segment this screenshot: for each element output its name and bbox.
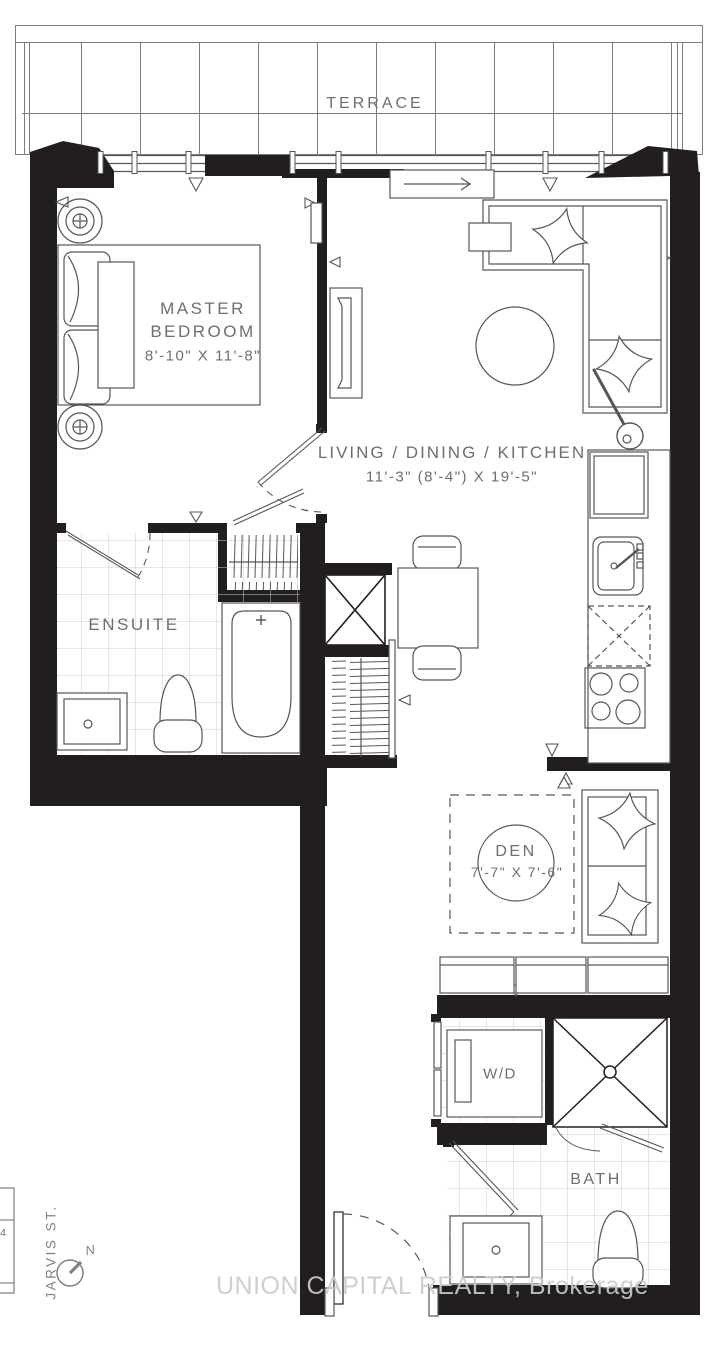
- bath-label: BATH: [570, 1171, 621, 1189]
- marker-bedroom-left: [56, 197, 68, 207]
- wall-panel: [311, 203, 322, 243]
- wall-shaft-bottom: [300, 645, 392, 657]
- ensuite-closet: [229, 535, 298, 590]
- sofa-side-table: [469, 223, 511, 251]
- shower: [553, 1018, 667, 1127]
- wall-bedroom-bottom-b: [148, 523, 218, 533]
- den-label: DEN: [495, 843, 536, 861]
- living-dining-kitchen-label: LIVING / DINING / KITCHEN: [318, 443, 586, 463]
- unit-edge-label: 4: [0, 1227, 6, 1239]
- side-table-top: [58, 199, 102, 243]
- marker-bedroom-window: [189, 178, 203, 191]
- wall-left: [30, 186, 57, 806]
- den-table: [478, 825, 554, 901]
- ensuite-label: ENSUITE: [88, 615, 179, 635]
- brokerage-watermark: UNION CAPITAL REALTY, Brokerage: [216, 1272, 649, 1301]
- unit-edge-box: [0, 1188, 14, 1293]
- wall-bedroom-bottom-a: [52, 523, 66, 533]
- den: [440, 790, 668, 993]
- wall-hallcloset-bottom: [327, 755, 397, 768]
- marker-corridor: [399, 695, 410, 705]
- tv-console: [330, 288, 362, 398]
- shaft: [325, 575, 385, 645]
- floor-plan-drawing: [0, 0, 728, 1353]
- ensuite-vanity: [57, 693, 127, 750]
- wall-den-closet-band: [437, 995, 670, 1018]
- marker-living-wall: [330, 257, 340, 267]
- den-dims: 7'-7" X 7'-6": [471, 864, 563, 880]
- wall-wd-divider: [545, 1018, 553, 1125]
- wall-ensuite-bottom: [30, 755, 327, 806]
- wall-window-pier: [205, 155, 290, 176]
- master-bedroom-label-line2: BEDROOM: [150, 322, 255, 342]
- sliding-door: [390, 170, 494, 198]
- edge-annotations: [0, 1188, 83, 1293]
- living-dining-kitchen-dims: 11'-3" (8'-4") X 19'-5": [366, 469, 538, 486]
- round-rug: [476, 307, 554, 385]
- master-bedroom-label-line1: MASTER: [160, 299, 246, 319]
- living-furniture: [330, 200, 667, 449]
- wall-shaft-top: [300, 563, 392, 575]
- wall-bedroom-bottom-c: [296, 523, 325, 533]
- wd-door-panel-b: [434, 1070, 441, 1116]
- bedroom-door: [258, 428, 325, 512]
- wall-right: [670, 172, 700, 1315]
- kitchen: [585, 450, 670, 763]
- den-sofa: [582, 790, 658, 943]
- street-label: JARVIS ST.: [44, 1204, 59, 1299]
- laundry-label: W/D: [483, 1066, 517, 1083]
- master-bedroom-dims: 8'-10" X 11'-8": [145, 348, 261, 365]
- marker-kitchen-a: [546, 744, 558, 756]
- compass-icon: [57, 1260, 83, 1286]
- wd-door-panel-a: [434, 1022, 441, 1068]
- hall-closet: [332, 640, 395, 758]
- dining-set: [398, 536, 478, 680]
- terrace-label: TERRACE: [326, 95, 423, 113]
- marker-living-window: [543, 178, 557, 191]
- terrace-deck: [15, 26, 703, 156]
- floor-plan: TERRACE MASTER BEDROOM 8'-10" X 11'-8" L…: [0, 0, 728, 1353]
- side-table-bottom: [58, 405, 102, 449]
- closet-slider: [389, 640, 395, 758]
- marker-ensuite-top: [190, 512, 202, 522]
- den-closet: [440, 957, 668, 993]
- wall-sill: [282, 169, 404, 178]
- bathtub: [222, 603, 300, 753]
